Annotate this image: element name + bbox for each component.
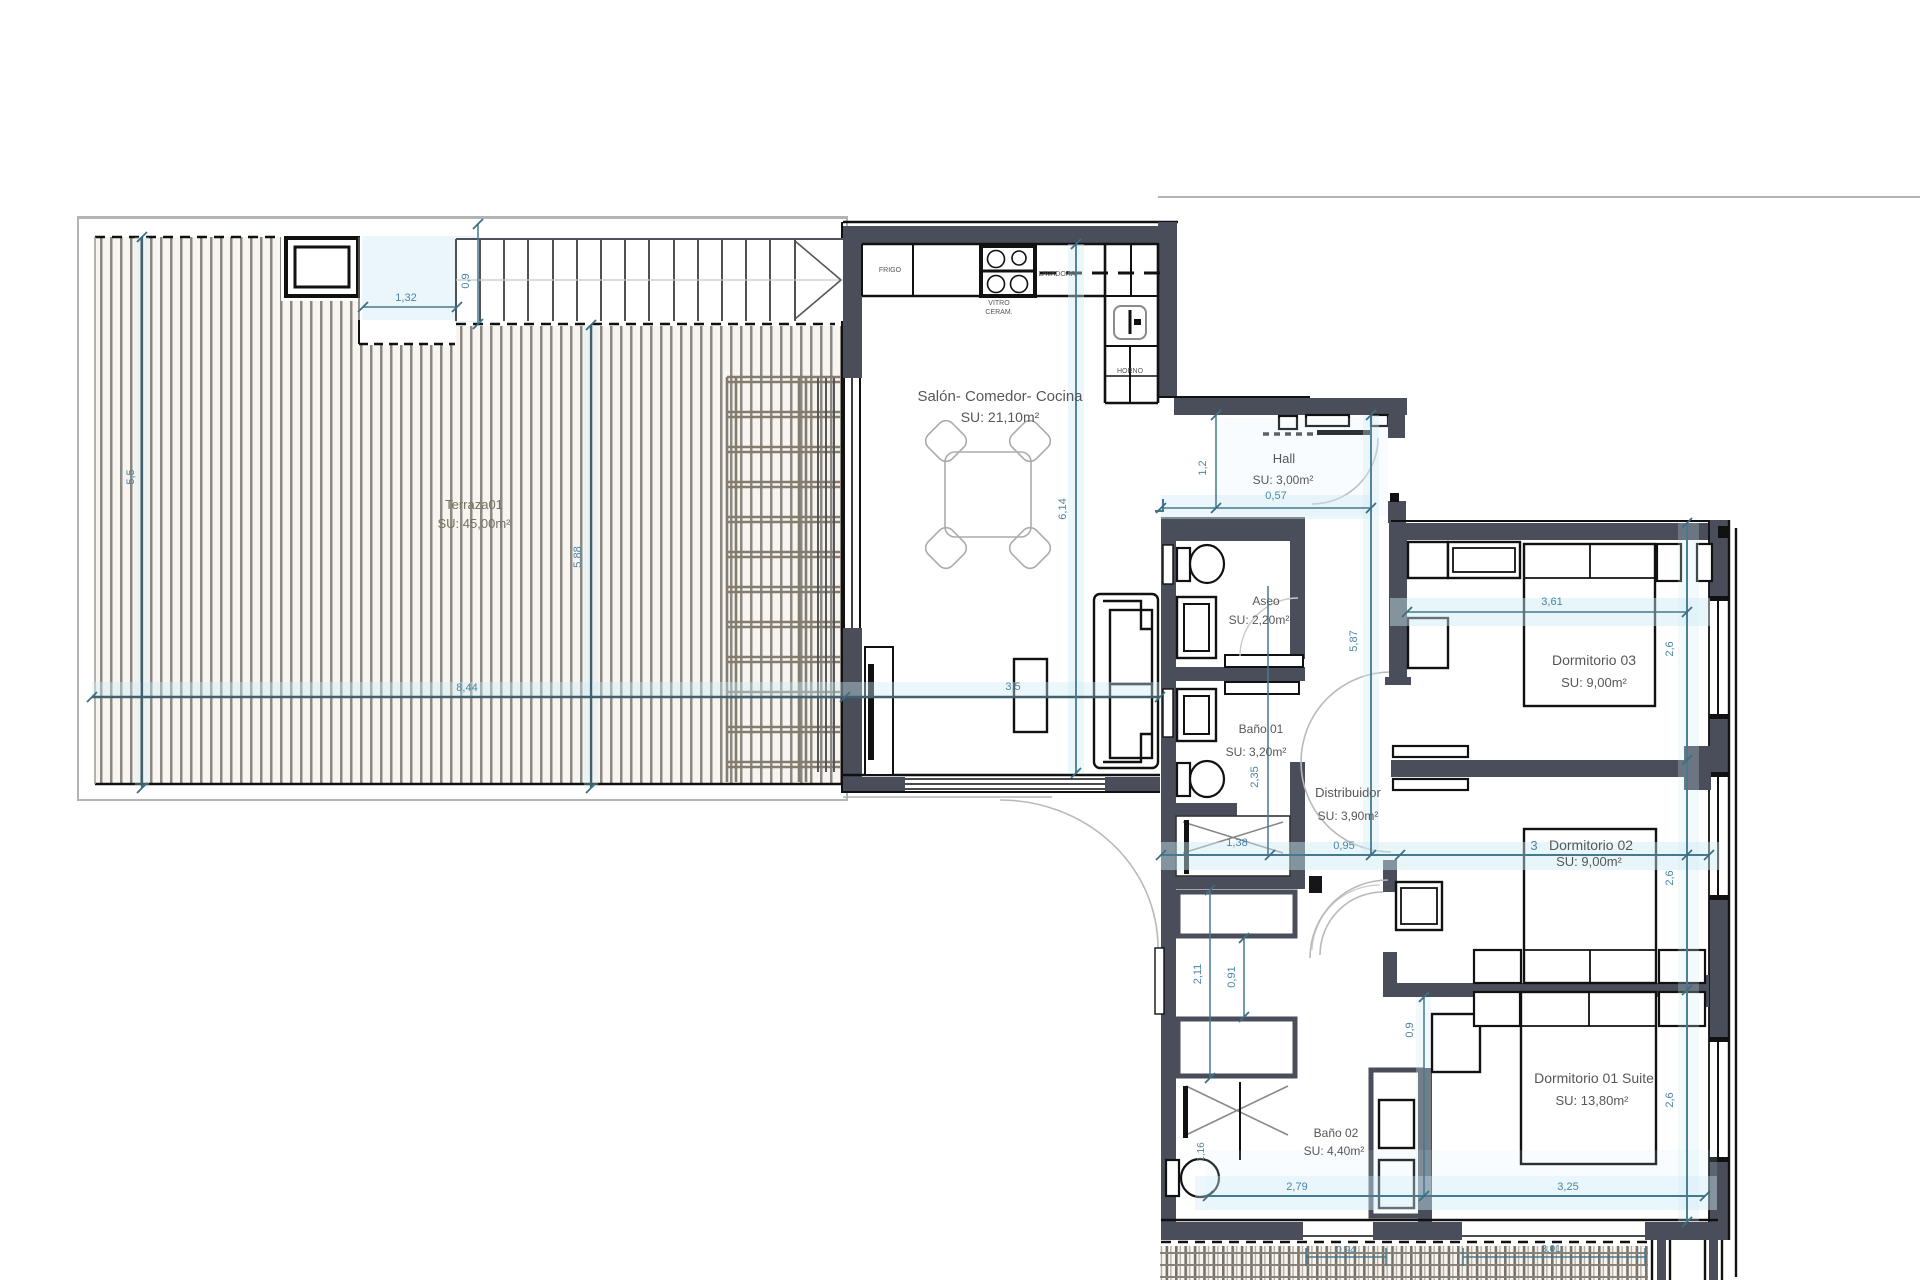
svg-text:SU: 2,20m²: SU: 2,20m² (1229, 613, 1290, 627)
svg-text:0,57: 0,57 (1265, 490, 1286, 502)
svg-text:3,25: 3,25 (1557, 1181, 1578, 1193)
svg-text:2,35: 2,35 (1249, 766, 1261, 787)
svg-text:0,9: 0,9 (1404, 1022, 1416, 1037)
svg-text:6,14: 6,14 (1057, 498, 1069, 519)
svg-text:0,9: 0,9 (460, 273, 472, 288)
svg-text:5,88: 5,88 (572, 546, 584, 567)
svg-text:5,87: 5,87 (1348, 630, 1360, 651)
svg-text:Baño 01: Baño 01 (1239, 722, 1284, 736)
svg-text:SU: 3,20m²: SU: 3,20m² (1226, 745, 1287, 759)
svg-text:0,95: 0,95 (1333, 840, 1354, 852)
svg-text:0,91: 0,91 (1226, 966, 1238, 987)
svg-text:Distribuidor: Distribuidor (1315, 785, 1381, 800)
svg-text:Dormitorio 03: Dormitorio 03 (1552, 652, 1636, 668)
svg-text:1,38: 1,38 (1226, 837, 1247, 849)
svg-text:3: 3 (1530, 838, 1537, 853)
svg-text:3,01: 3,01 (1541, 1244, 1561, 1255)
svg-text:VITRO: VITRO (988, 300, 1010, 307)
svg-text:SU: 21,10m²: SU: 21,10m² (961, 409, 1040, 425)
svg-text:3,61: 3,61 (1541, 596, 1562, 608)
svg-text:SU: 4,40m²: SU: 4,40m² (1304, 1144, 1365, 1158)
svg-text:2,6: 2,6 (1664, 641, 1676, 656)
svg-text:2,6: 2,6 (1664, 870, 1676, 885)
svg-text:SU: 3,00m²: SU: 3,00m² (1253, 473, 1314, 487)
svg-text:0,94: 0,94 (1336, 1245, 1356, 1256)
svg-text:HORNO: HORNO (1117, 368, 1144, 375)
svg-text:5,5: 5,5 (125, 469, 137, 484)
svg-text:2,6: 2,6 (1664, 1092, 1676, 1107)
svg-text:8,44: 8,44 (456, 682, 477, 694)
svg-text:Aseo: Aseo (1252, 594, 1280, 608)
svg-text:Salón- Comedor- Cocina: Salón- Comedor- Cocina (917, 388, 1083, 405)
svg-text:SU: 9,00m²: SU: 9,00m² (1556, 854, 1622, 869)
svg-text:Terraza01: Terraza01 (445, 497, 503, 512)
svg-text:SU: 3,90m²: SU: 3,90m² (1318, 809, 1379, 823)
svg-text:FRIGO: FRIGO (879, 267, 902, 274)
svg-text:3,5: 3,5 (1005, 681, 1020, 693)
svg-text:1,16: 1,16 (1196, 1142, 1207, 1162)
svg-text:SU: 13,80m²: SU: 13,80m² (1556, 1093, 1630, 1108)
svg-text:Dormitorio 01 Suite: Dormitorio 01 Suite (1534, 1070, 1654, 1086)
svg-text:SU: 45,00m²: SU: 45,00m² (438, 516, 512, 531)
svg-text:2,79: 2,79 (1286, 1181, 1307, 1193)
svg-text:CERAM.: CERAM. (985, 309, 1012, 316)
svg-text:Dormitorio 02: Dormitorio 02 (1549, 837, 1633, 853)
svg-text:SU: 9,00m²: SU: 9,00m² (1561, 675, 1627, 690)
svg-text:Hall: Hall (1273, 451, 1296, 466)
svg-text:LAVADORA: LAVADORA (1038, 271, 1075, 278)
svg-text:1,2: 1,2 (1197, 460, 1209, 475)
svg-text:1,32: 1,32 (395, 292, 416, 304)
svg-text:2,11: 2,11 (1192, 964, 1204, 985)
svg-text:Baño 02: Baño 02 (1314, 1126, 1359, 1140)
